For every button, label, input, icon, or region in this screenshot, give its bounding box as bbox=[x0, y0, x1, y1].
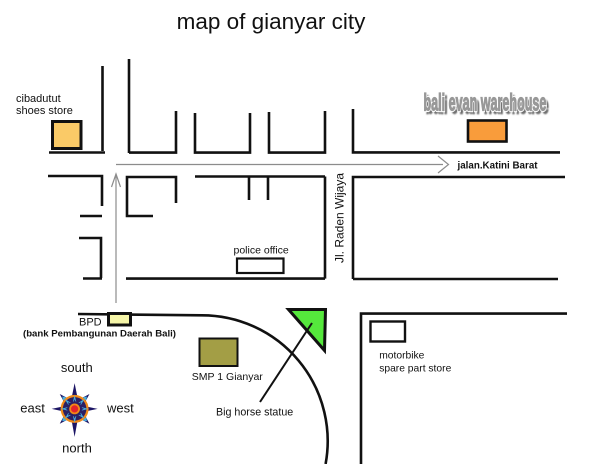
svg-text:cibadutut: cibadutut bbox=[16, 93, 61, 105]
svg-text:east: east bbox=[20, 401, 45, 416]
svg-text:motorbike: motorbike bbox=[379, 350, 424, 361]
svg-text:BPD: BPD bbox=[79, 316, 102, 328]
svg-text:(bank Pembangunan Daerah Bali): (bank Pembangunan Daerah Bali) bbox=[23, 329, 176, 340]
svg-text:shoes store: shoes store bbox=[16, 105, 73, 117]
svg-text:spare part store: spare part store bbox=[379, 363, 451, 374]
svg-text:Big horse statue: Big horse statue bbox=[216, 407, 293, 419]
svg-text:Jl. Raden Wijaya: Jl. Raden Wijaya bbox=[333, 173, 347, 263]
svg-text:west: west bbox=[106, 401, 134, 416]
svg-text:north: north bbox=[62, 440, 92, 455]
svg-text:bali evan warehouse: bali evan warehouse bbox=[424, 90, 547, 116]
svg-text:map of gianyar city: map of gianyar city bbox=[177, 9, 367, 34]
svg-text:police office: police office bbox=[234, 245, 289, 257]
svg-text:south: south bbox=[61, 360, 93, 375]
svg-text:SMP 1 Gianyar: SMP 1 Gianyar bbox=[192, 371, 264, 383]
svg-text:jalan.Katini Barat: jalan.Katini Barat bbox=[457, 161, 539, 172]
